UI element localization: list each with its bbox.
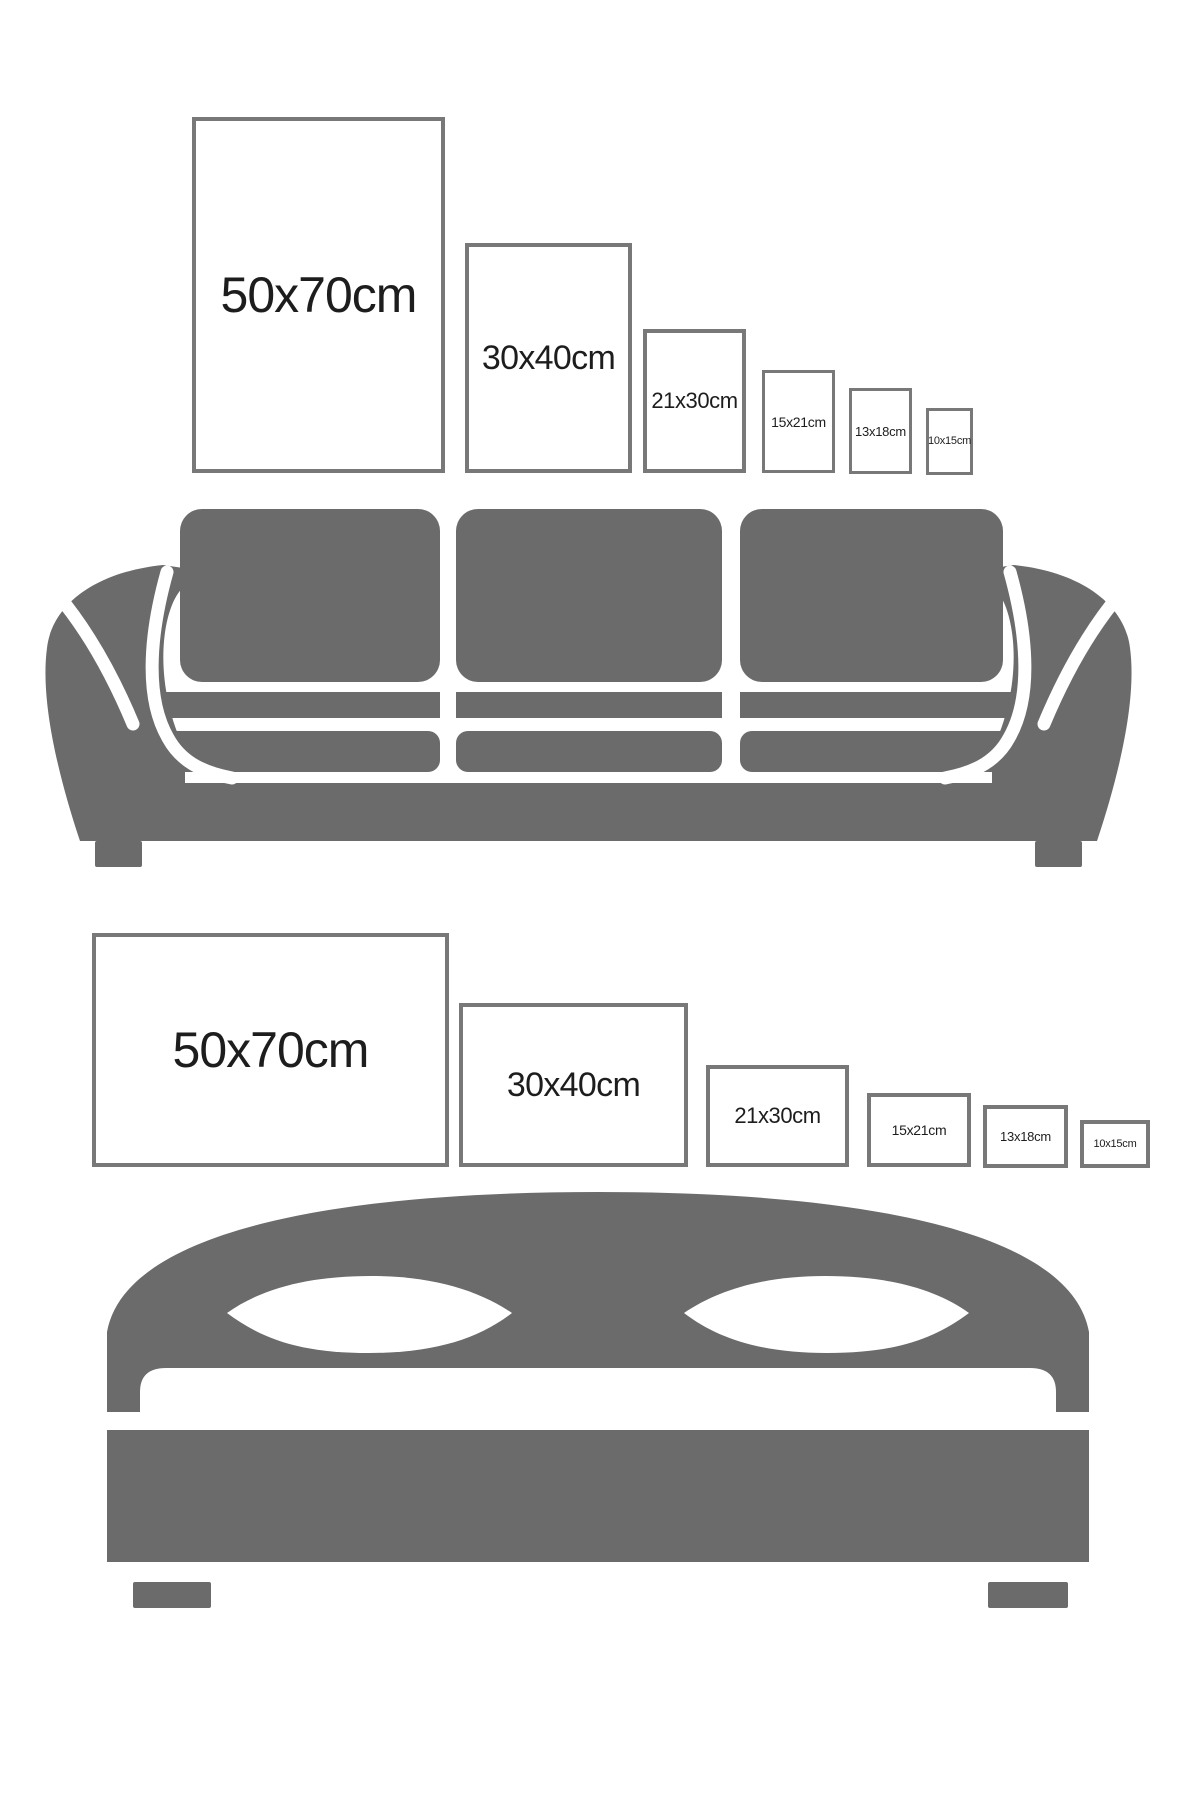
sofa-left-armrest — [45, 565, 210, 841]
poster-frame-30x40-portrait: 30x40cm — [465, 243, 632, 473]
poster-frame-15x21-landscape: 15x21cm — [867, 1093, 971, 1167]
sofa-deck — [148, 692, 1036, 718]
bed-base — [107, 1430, 1089, 1562]
size-guide-canvas: 50x70cm 30x40cm 21x30cm 15x21cm 13x18cm … — [0, 0, 1200, 1800]
size-label: 10x15cm — [928, 436, 971, 447]
bed-right-foot — [988, 1582, 1068, 1608]
poster-frame-50x70-landscape: 50x70cm — [92, 933, 449, 1167]
bed-headboard — [107, 1192, 1089, 1412]
bed-left-pillow — [227, 1276, 512, 1353]
poster-frame-10x15-portrait: 10x15cm — [926, 408, 973, 475]
size-label: 15x21cm — [771, 415, 826, 429]
size-label: 50x70cm — [173, 1025, 369, 1075]
size-label: 21x30cm — [734, 1105, 820, 1127]
bed-right-pillow — [684, 1276, 969, 1353]
size-label: 30x40cm — [482, 341, 615, 375]
size-label: 13x18cm — [1000, 1130, 1051, 1143]
sofa-base — [85, 783, 1092, 841]
size-label: 21x30cm — [651, 390, 737, 412]
sofa-right-armrest — [967, 565, 1132, 841]
size-label: 10x15cm — [1093, 1139, 1136, 1150]
sofa-left-foot — [95, 841, 142, 867]
poster-frame-50x70-portrait: 50x70cm — [192, 117, 445, 473]
sofa-seat-cushions — [138, 731, 1040, 772]
size-label: 30x40cm — [507, 1068, 640, 1102]
poster-frame-10x15-landscape: 10x15cm — [1080, 1120, 1150, 1168]
bed-left-foot — [133, 1582, 211, 1608]
poster-frame-30x40-landscape: 30x40cm — [459, 1003, 688, 1167]
sofa-arm-seams — [57, 572, 1120, 778]
sofa-right-foot — [1035, 841, 1082, 867]
poster-frame-21x30-landscape: 21x30cm — [706, 1065, 849, 1167]
size-label: 15x21cm — [892, 1123, 947, 1137]
size-label: 13x18cm — [855, 425, 906, 438]
sofa-back-cushions — [180, 509, 1003, 682]
poster-frame-13x18-portrait: 13x18cm — [849, 388, 912, 474]
poster-frame-13x18-landscape: 13x18cm — [983, 1105, 1068, 1168]
poster-frame-15x21-portrait: 15x21cm — [762, 370, 835, 473]
size-label: 50x70cm — [221, 270, 417, 320]
poster-frame-21x30-portrait: 21x30cm — [643, 329, 746, 473]
